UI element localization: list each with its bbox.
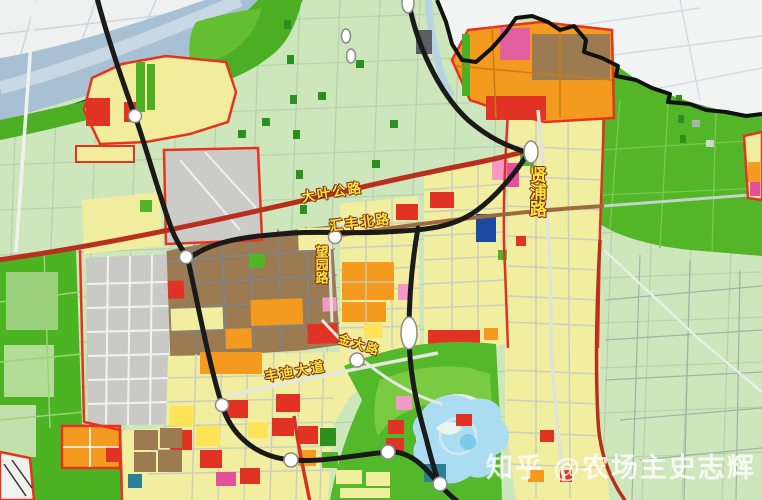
zone-right-edge: [744, 132, 762, 200]
zone-bottomleft-hatched: [0, 452, 34, 500]
watermark: 知乎 @农场主史志辉: [486, 446, 756, 485]
east-district: [424, 158, 508, 350]
map-canvas: [0, 0, 762, 500]
zone-southwest-orange: [62, 426, 120, 468]
grey-district: [86, 254, 170, 426]
planning-map: 大叶公路 汇丰北路 望园路 贤浦路 金大路 丰迪大道 知乎 @农场主史志辉: [0, 0, 762, 500]
